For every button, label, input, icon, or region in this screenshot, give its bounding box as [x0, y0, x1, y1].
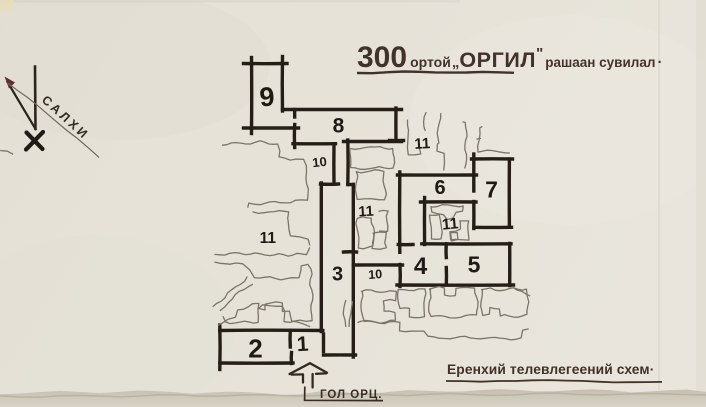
- svg-text:11: 11: [260, 230, 277, 247]
- svg-text:4: 4: [414, 253, 428, 280]
- svg-text:10: 10: [368, 267, 383, 282]
- svg-text:2: 2: [248, 334, 262, 364]
- svg-text:Еренхий телевлегеений схем·: Еренхий телевлегеений схем·: [447, 362, 654, 377]
- svg-text:11: 11: [414, 135, 431, 153]
- svg-text:8: 8: [333, 115, 345, 138]
- svg-text:11: 11: [441, 215, 459, 233]
- svg-text:9: 9: [258, 82, 275, 113]
- svg-text:5: 5: [468, 252, 481, 278]
- svg-text:10: 10: [312, 154, 328, 170]
- svg-text:7: 7: [485, 177, 498, 203]
- svg-text:1: 1: [296, 333, 309, 357]
- svg-text:11: 11: [358, 204, 374, 221]
- svg-text:ГОЛ ОРЦ.: ГОЛ ОРЦ.: [320, 389, 383, 401]
- svg-text:3: 3: [332, 264, 343, 286]
- svg-text:6: 6: [434, 177, 445, 199]
